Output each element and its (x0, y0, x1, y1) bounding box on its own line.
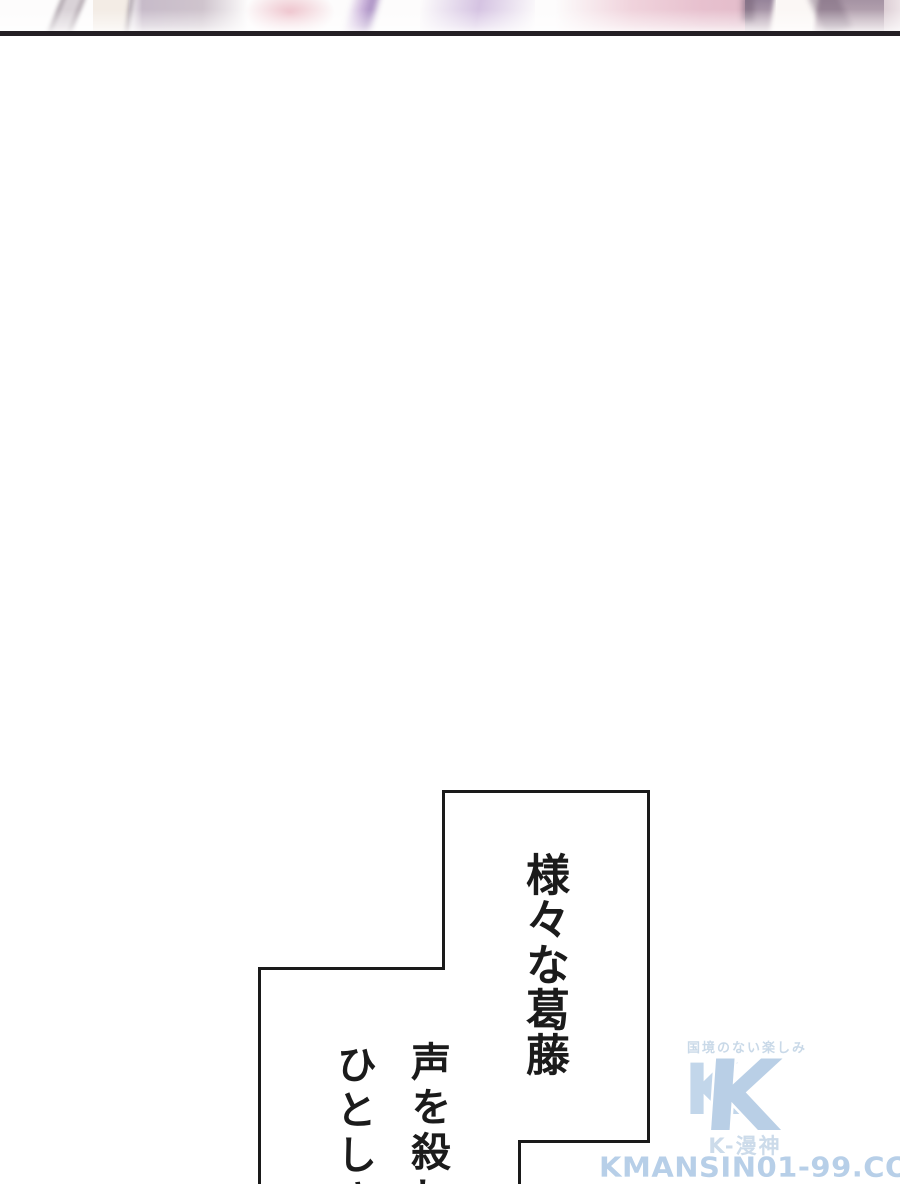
speech-bubble-outline (0, 0, 900, 1184)
watermark-k-big: K (700, 1046, 787, 1138)
dialogue-text-lower-right-column: 声を殺し (407, 1041, 447, 1184)
manga-page: 様々な葛藤 声を殺し ひとしき 国境のない楽しみ K K K-漫神 KMANSI… (0, 0, 900, 1184)
dialogue-text-lower-left-column: ひとしき (333, 1044, 373, 1184)
watermark-k-logo: K K (682, 1046, 808, 1138)
artwork-dark-streak (742, 0, 754, 22)
watermark-site-url: KMANSIN01-99.COM (599, 1151, 900, 1183)
artwork-diagonal-lines (47, 0, 90, 31)
artwork-highlight (769, 0, 819, 31)
artwork-thin-line (124, 0, 134, 31)
artwork-dark-wedge (808, 0, 852, 31)
dialogue-text-main: 様々な葛藤 (521, 852, 565, 1077)
artwork-purple-streak (339, 0, 386, 31)
top-panel-artwork (0, 0, 900, 31)
